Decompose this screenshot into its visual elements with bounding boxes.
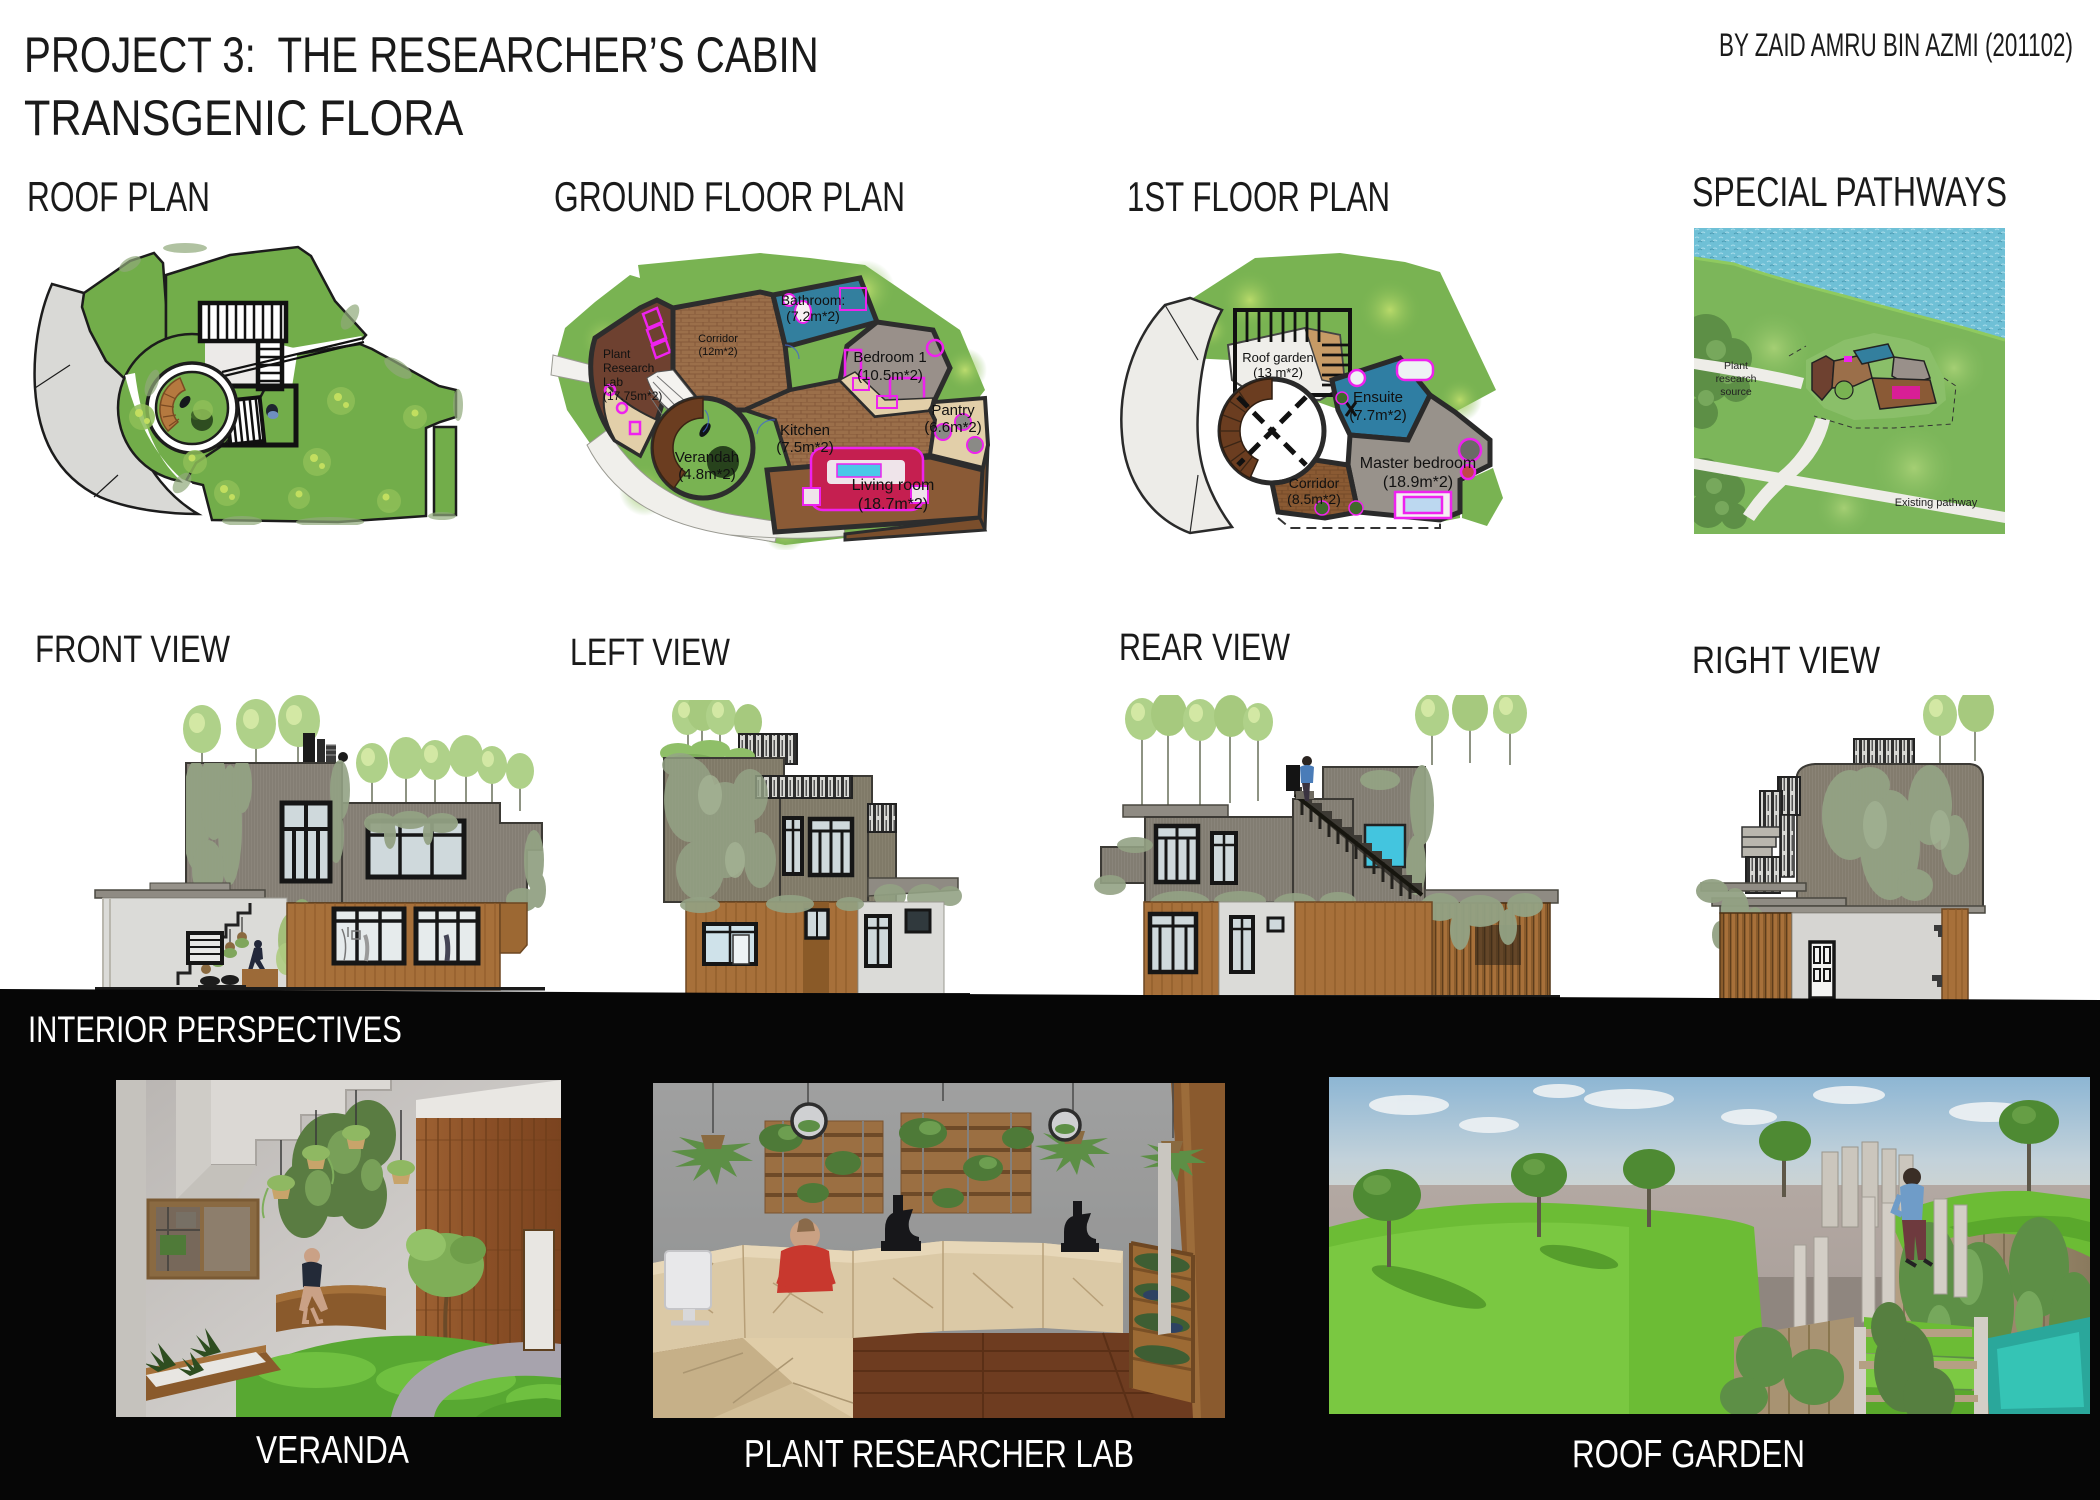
svg-text:Pantry: Pantry [931, 402, 975, 419]
svg-text:Existing pathway: Existing pathway [1895, 497, 1978, 509]
svg-text:Plant: Plant [603, 347, 631, 361]
svg-text:Master bedroom: Master bedroom [1360, 455, 1477, 472]
svg-text:Kitchen: Kitchen [780, 422, 830, 439]
svg-text:(12m*2): (12m*2) [698, 346, 737, 358]
svg-text:(17.75m*2): (17.75m*2) [603, 389, 662, 403]
svg-text:(18.7m*2): (18.7m*2) [858, 496, 928, 513]
svg-text:(10.5m*2): (10.5m*2) [857, 367, 923, 384]
svg-text:Roof garden: Roof garden [1242, 350, 1314, 365]
svg-text:(7.2m*2): (7.2m*2) [786, 308, 840, 324]
svg-text:source: source [1720, 386, 1752, 398]
svg-text:Verandah: Verandah [675, 449, 739, 466]
svg-text:Corridor: Corridor [1289, 475, 1340, 491]
svg-text:(7.7m*2): (7.7m*2) [1349, 407, 1407, 424]
svg-text:(7.5m*2): (7.5m*2) [776, 439, 834, 456]
svg-text:(4.8m*2): (4.8m*2) [678, 466, 736, 483]
svg-text:Ensuite: Ensuite [1353, 389, 1403, 406]
svg-text:Lab: Lab [603, 375, 623, 389]
svg-text:Living room: Living room [852, 477, 935, 494]
svg-text:(8.5m*2): (8.5m*2) [1287, 491, 1341, 507]
svg-text:Plant: Plant [1724, 360, 1748, 372]
svg-text:(13 m*2): (13 m*2) [1253, 365, 1303, 380]
svg-text:research: research [1716, 373, 1757, 385]
svg-text:Research: Research [603, 361, 654, 375]
svg-text:Corridor: Corridor [698, 333, 738, 345]
svg-text:(18.9m*2): (18.9m*2) [1383, 474, 1453, 491]
svg-text:Bedroom 1: Bedroom 1 [853, 349, 926, 366]
svg-text:Bathroom:: Bathroom: [781, 292, 846, 308]
svg-text:(6.6m*2): (6.6m*2) [924, 419, 982, 436]
